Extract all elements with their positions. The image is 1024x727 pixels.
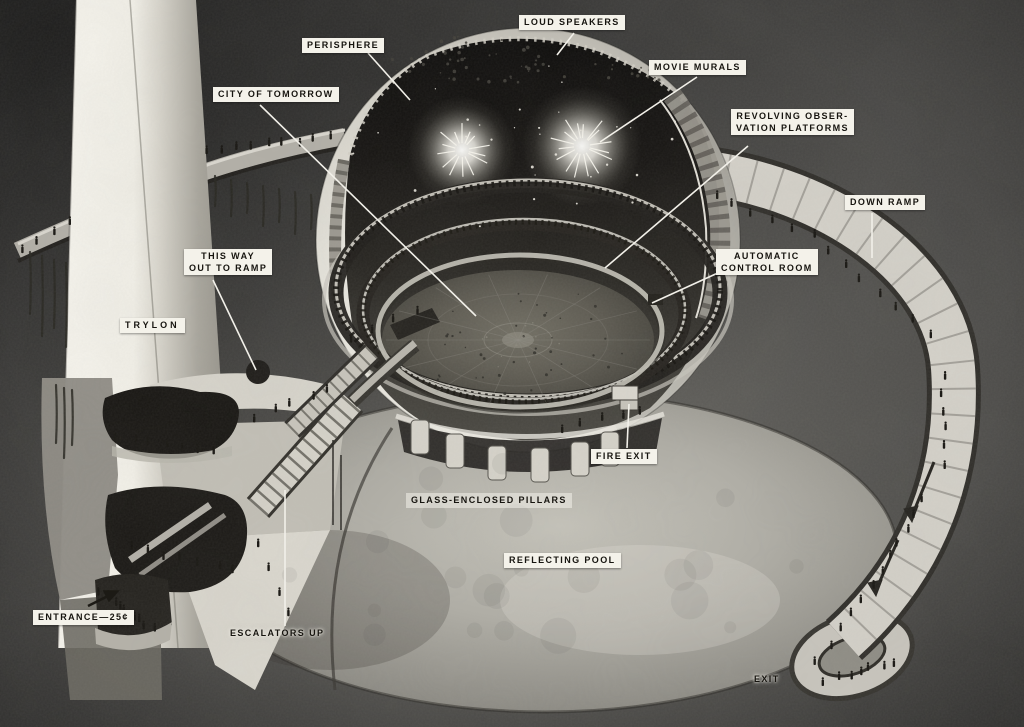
label-line: REVOLVING OBSER- <box>736 111 849 123</box>
illustration-page: LOUD SPEAKERS PERISPHERE MOVIE MURALS CI… <box>0 0 1024 727</box>
label-automatic-control-room: AUTOMATIC CONTROL ROOM <box>716 249 818 275</box>
label-trylon: TRYLON <box>120 318 185 333</box>
label-movie-murals: MOVIE MURALS <box>649 60 746 75</box>
label-this-way-out-to-ramp: THIS WAY OUT TO RAMP <box>184 249 272 275</box>
label-reflecting-pool: REFLECTING POOL <box>504 553 621 568</box>
label-exit: EXIT <box>749 672 785 687</box>
label-line: AUTOMATIC <box>721 251 813 263</box>
print-grain <box>0 0 1024 727</box>
label-perisphere: PERISPHERE <box>302 38 384 53</box>
label-revolving-observation-platforms: REVOLVING OBSER- VATION PLATFORMS <box>731 109 854 135</box>
label-line: THIS WAY <box>189 251 267 263</box>
label-loud-speakers: LOUD SPEAKERS <box>519 15 625 30</box>
label-city-of-tomorrow: CITY OF TOMORROW <box>213 87 339 102</box>
label-escalators-up: ESCALATORS UP <box>225 626 329 641</box>
label-fire-exit: FIRE EXIT <box>591 449 657 464</box>
perisphere-cutaway-illustration <box>0 0 1024 727</box>
label-glass-enclosed-pillars: GLASS-ENCLOSED PILLARS <box>406 493 572 508</box>
label-down-ramp: DOWN RAMP <box>845 195 925 210</box>
label-line: OUT TO RAMP <box>189 263 267 275</box>
label-line: CONTROL ROOM <box>721 263 813 275</box>
label-line: VATION PLATFORMS <box>736 123 849 135</box>
label-entrance-25c: ENTRANCE—25¢ <box>33 610 134 625</box>
